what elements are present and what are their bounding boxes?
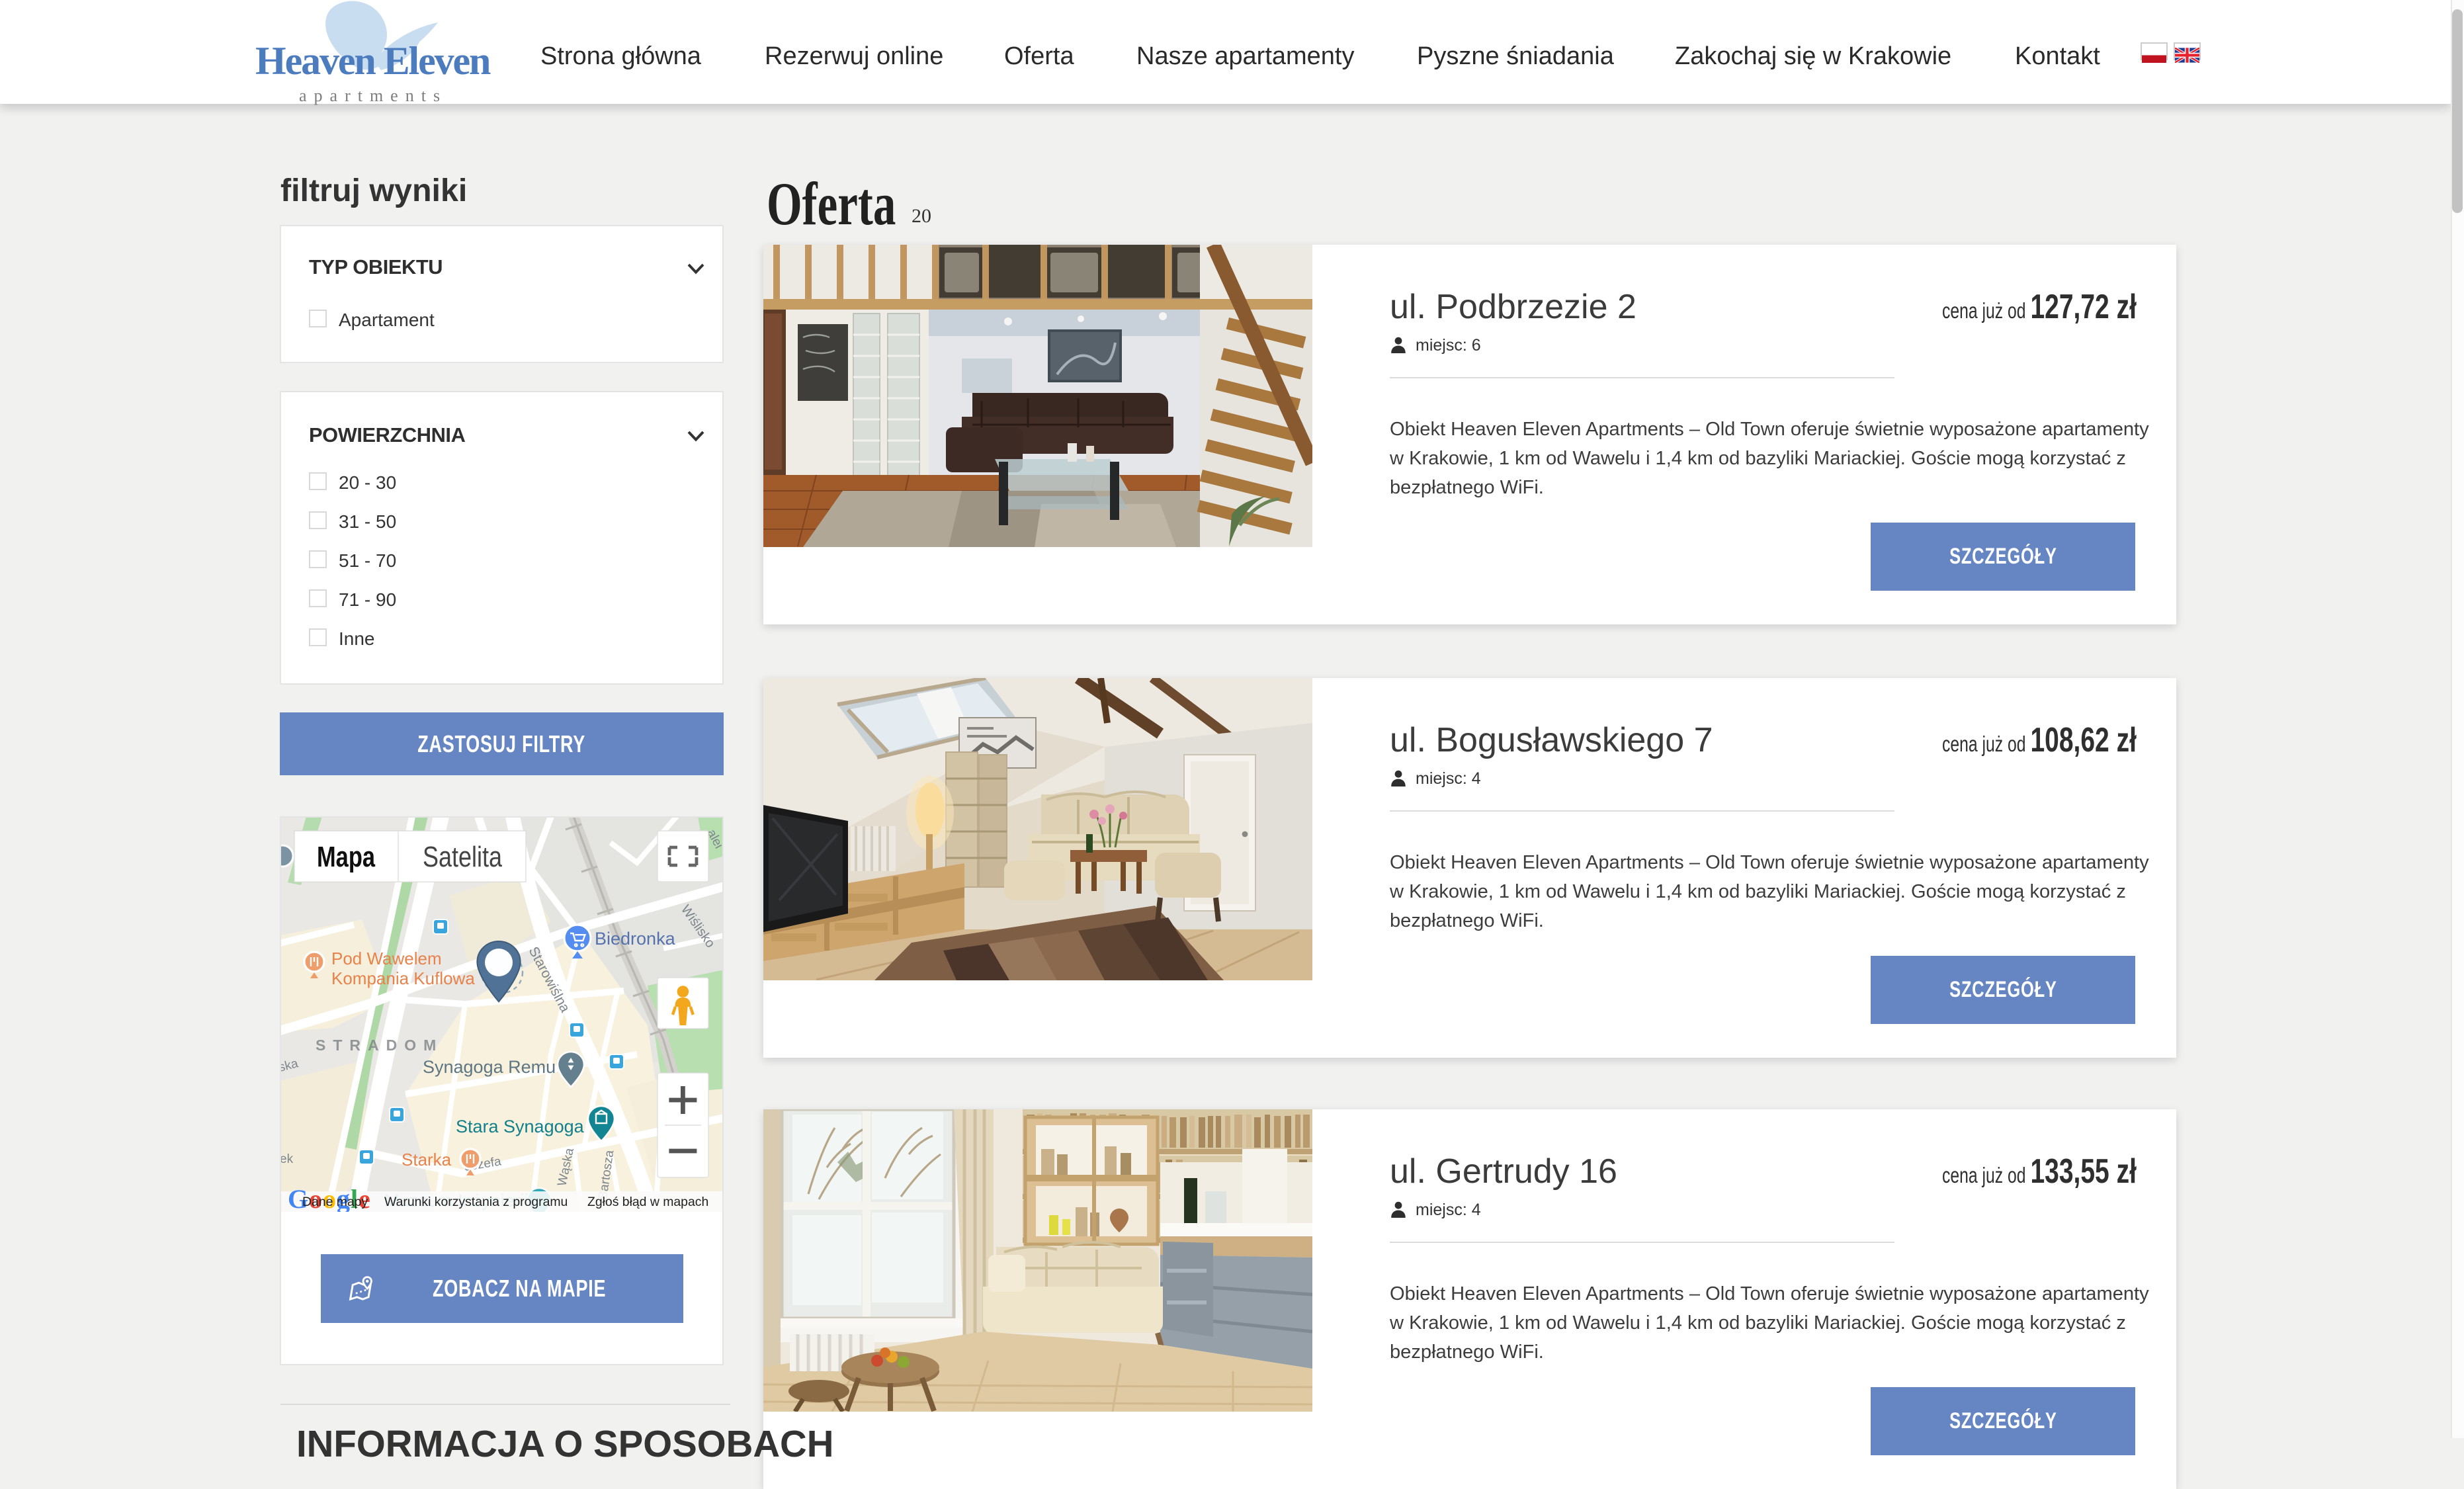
svg-text:Biedronka: Biedronka xyxy=(595,929,676,949)
svg-text:Mapa: Mapa xyxy=(317,841,375,873)
svg-text:Stara Synagoga: Stara Synagoga xyxy=(456,1117,585,1136)
svg-text:Kompania Kuflowa: Kompania Kuflowa xyxy=(331,968,475,988)
svg-text:Starka: Starka xyxy=(402,1150,452,1170)
svg-text:Warunki korzystania z programu: Warunki korzystania z programu xyxy=(384,1195,568,1209)
svg-text:Zgłoś błąd w mapach: Zgłoś błąd w mapach xyxy=(587,1195,708,1209)
svg-text:Dane mapy: Dane mapy xyxy=(302,1195,368,1209)
svg-text:Synagoga Remu: Synagoga Remu xyxy=(423,1057,556,1077)
svg-text:Satelita: Satelita xyxy=(423,841,502,873)
svg-text:Pod Wawelem: Pod Wawelem xyxy=(331,949,442,968)
svg-text:ek: ek xyxy=(280,1152,294,1166)
svg-text:STRADOM: STRADOM xyxy=(316,1037,443,1054)
